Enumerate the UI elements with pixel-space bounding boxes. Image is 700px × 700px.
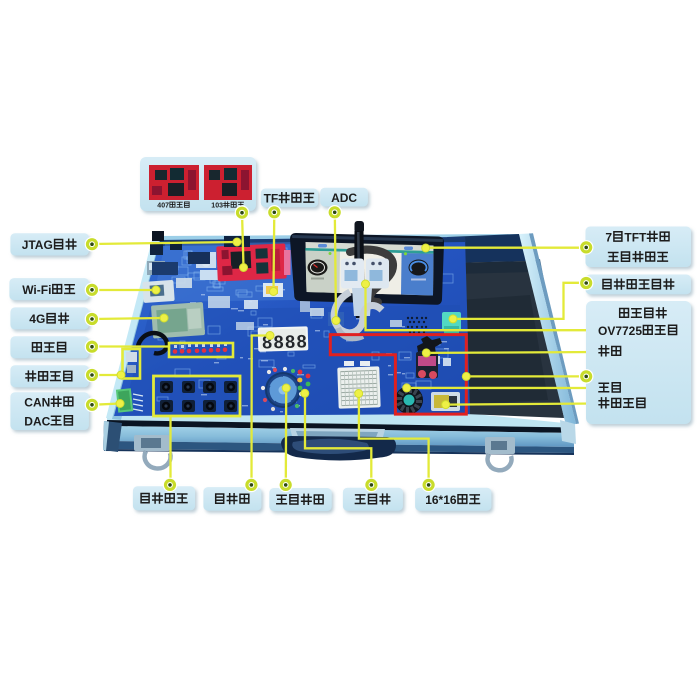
svg-text:407: 407 bbox=[157, 203, 169, 210]
svg-text:8: 8 bbox=[285, 332, 296, 352]
svg-text:ADC: ADC bbox=[331, 191, 357, 205]
svg-text:16*16: 16*16 bbox=[425, 493, 457, 507]
svg-text:103: 103 bbox=[211, 203, 223, 210]
svg-text:TF: TF bbox=[264, 192, 279, 206]
svg-text:7: 7 bbox=[605, 230, 612, 244]
svg-text:CAN: CAN bbox=[24, 396, 50, 410]
svg-text:TFT: TFT bbox=[624, 230, 647, 244]
svg-text:JTAG: JTAG bbox=[22, 238, 53, 252]
svg-text:4G: 4G bbox=[29, 312, 45, 326]
svg-text:OV7725: OV7725 bbox=[598, 324, 642, 338]
svg-text:8: 8 bbox=[273, 332, 284, 352]
svg-text:Wi-Fi: Wi-Fi bbox=[22, 283, 51, 297]
svg-text:DAC: DAC bbox=[24, 414, 50, 428]
svg-text:8: 8 bbox=[296, 331, 307, 351]
